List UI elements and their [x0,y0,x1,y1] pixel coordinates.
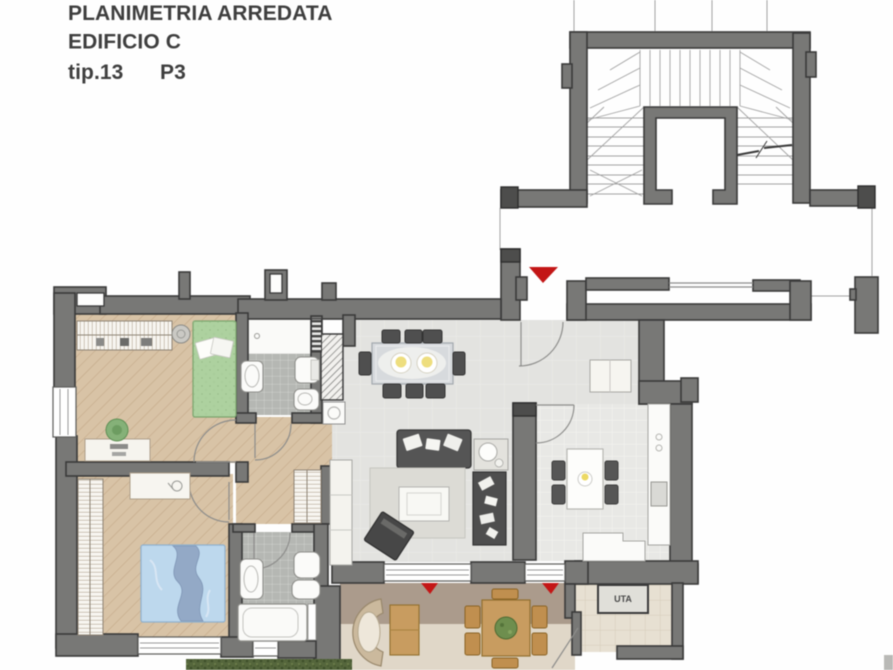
svg-text:UTA: UTA [614,594,632,604]
svg-text:P3: P3 [160,61,186,84]
svg-text:PLANIMETRIA ARREDATA: PLANIMETRIA ARREDATA [68,2,332,25]
svg-text:EDIFICIO C: EDIFICIO C [68,31,181,54]
svg-text:tip.13: tip.13 [68,61,123,84]
